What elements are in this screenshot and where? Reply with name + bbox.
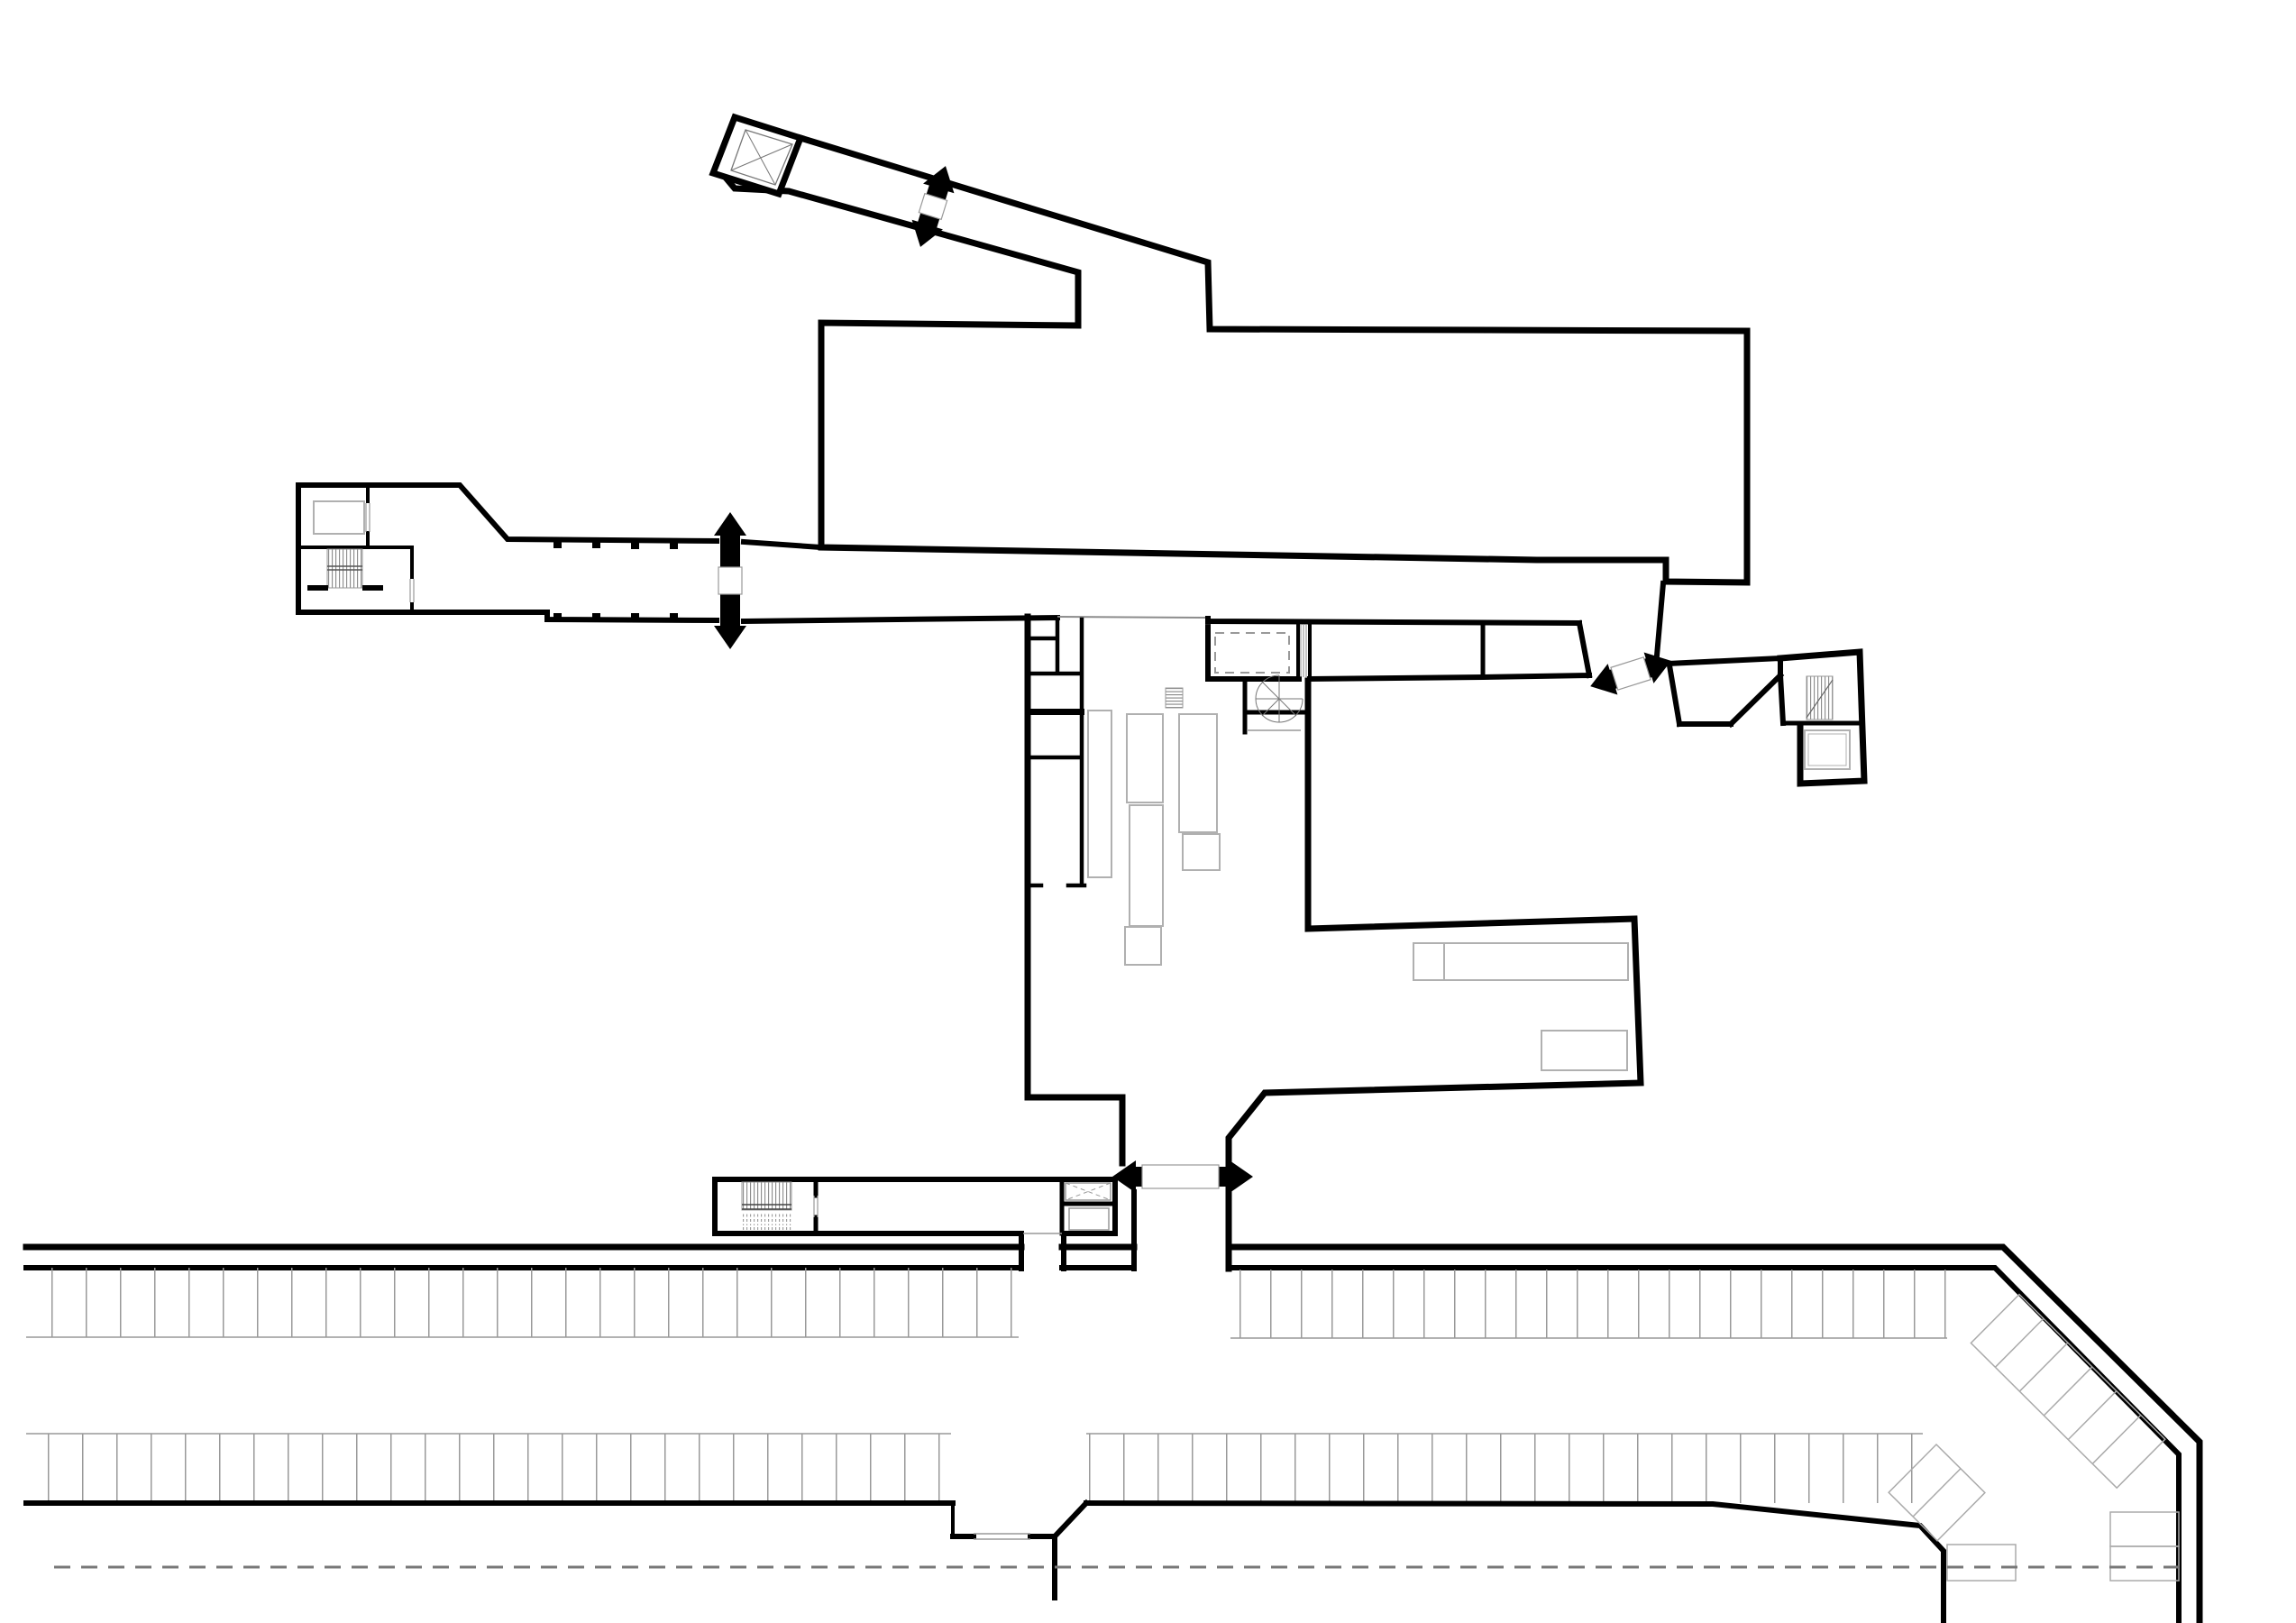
pavilion-partitions	[816, 1179, 1115, 1233]
entrance-arrow-south-icon	[1112, 1160, 1253, 1193]
glass-partition	[1057, 617, 1205, 618]
louvre-strip-icon	[1298, 622, 1310, 679]
entrance-arrow-east-icon	[1586, 646, 1676, 702]
hall-outline	[721, 138, 1747, 582]
stall-row-south-west	[26, 1434, 953, 1503]
pavilion-elevator-icon	[1066, 1183, 1111, 1230]
west-wing	[298, 485, 1057, 649]
floor-plan-canvas	[0, 0, 2296, 1623]
spiral-room-walls	[1245, 681, 1303, 732]
west-wing-outline-bottom	[298, 612, 717, 620]
east-wing	[1586, 583, 1864, 784]
floor-plan-svg	[0, 0, 2296, 1623]
street-pavilion	[715, 1179, 1115, 1269]
corridor-bottom-east-of-arrow	[744, 618, 1057, 621]
main-hall-and-north-corridor	[713, 117, 1747, 582]
pavilion-service-box	[1069, 1208, 1109, 1230]
passage-walls	[1134, 1192, 1229, 1269]
stall-row-south-east	[1086, 1434, 1944, 1623]
street-cars	[1947, 1512, 2179, 1581]
west-wing-table	[314, 501, 364, 534]
spiral-stair-icon	[1256, 675, 1303, 722]
south-block-outline	[1229, 681, 1641, 1269]
corridor-top-east-of-arrow	[744, 542, 821, 547]
stall-row-north-east	[1230, 1270, 1947, 1338]
pavilion-stair-icon	[742, 1182, 791, 1231]
dashed-equipment-outline	[1215, 633, 1289, 673]
east-wing-stair-icon	[1807, 676, 1833, 720]
hall-to-door-wall	[1657, 583, 1663, 656]
central-west-wall	[1028, 617, 1122, 1163]
small-stair-icon	[1166, 688, 1183, 708]
stall-row-north-west	[26, 1268, 1019, 1337]
central-furniture	[1088, 711, 1220, 965]
east-wing-table	[1805, 730, 1850, 769]
entrance-arrow-west-icon	[714, 512, 746, 649]
stall-row-diagonal	[1971, 1295, 2164, 1489]
parking-structure	[26, 1247, 2200, 1623]
south-block	[1112, 681, 1641, 1269]
central-north-walls	[1208, 619, 1589, 679]
service-room-cluster	[1028, 619, 1084, 885]
east-connector-walls	[1668, 658, 1783, 724]
colonnade-columns	[553, 541, 678, 620]
west-wing-stair-icon	[307, 549, 383, 591]
south-work-tables	[1413, 943, 1628, 1070]
ramp-walls	[953, 1503, 1086, 1598]
